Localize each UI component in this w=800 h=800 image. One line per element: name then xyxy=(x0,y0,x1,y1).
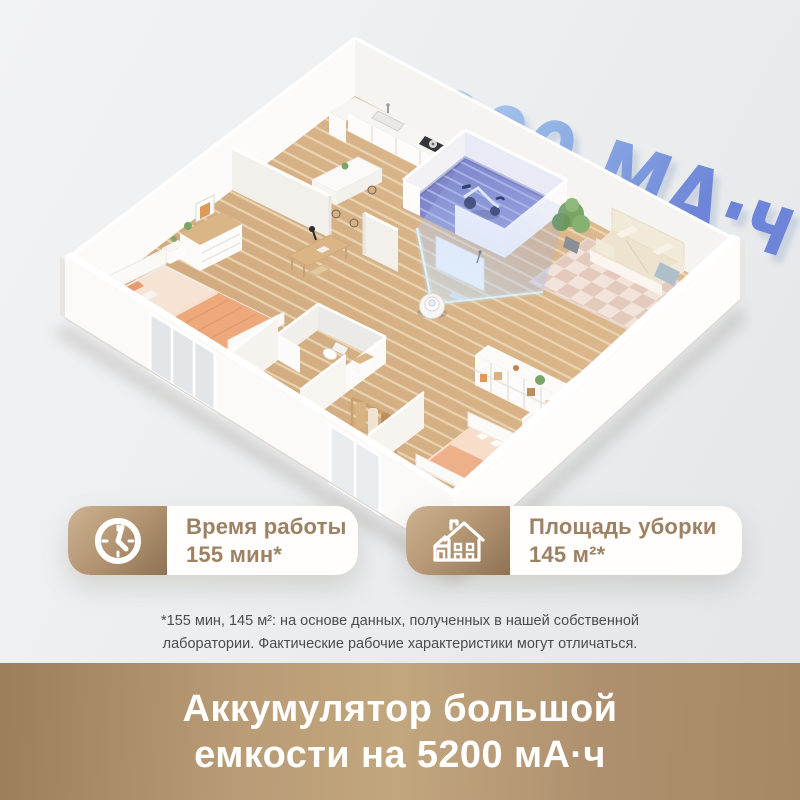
stat-card-area-accent xyxy=(406,506,510,575)
stat-runtime-value: 155 мин* xyxy=(186,541,347,569)
stat-card-runtime: Время работы 155 мин* xyxy=(68,506,358,575)
banner: Аккумулятор большой емкости на 5200 мА·ч xyxy=(0,663,800,800)
house-icon xyxy=(430,515,486,567)
disclaimer: *155 мин, 145 м²: на основе данных, полу… xyxy=(0,610,800,656)
disclaimer-line-1: *155 мин, 145 м²: на основе данных, полу… xyxy=(0,610,800,633)
stat-area-value: 145 м²* xyxy=(529,541,717,569)
product-hero: 5200 МА·ч 5200 МА·ч xyxy=(0,0,800,800)
stat-card-area: Площадь уборки 145 м²* xyxy=(406,506,742,575)
stat-area-label: Площадь уборки xyxy=(529,513,717,541)
stat-runtime-label: Время работы xyxy=(186,513,347,541)
clock-icon xyxy=(92,515,144,567)
banner-title-line-2: емкости на 5200 мА·ч xyxy=(194,732,606,778)
stat-card-runtime-accent xyxy=(68,506,167,575)
building xyxy=(54,38,746,584)
disclaimer-line-2: лаборатории. Фактические рабочие характе… xyxy=(0,633,800,656)
banner-title-line-1: Аккумулятор большой xyxy=(183,686,618,732)
